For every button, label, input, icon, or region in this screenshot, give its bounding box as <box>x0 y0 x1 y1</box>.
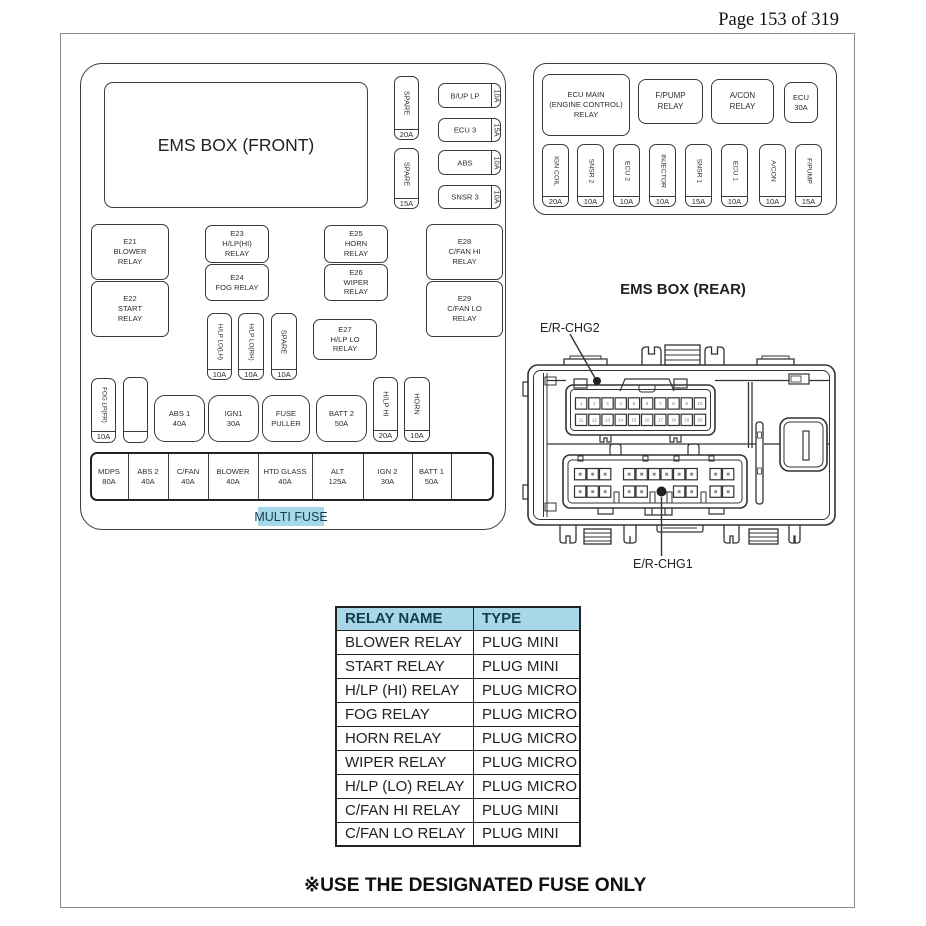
svg-text:3: 3 <box>606 401 609 406</box>
svg-text:2: 2 <box>593 401 596 406</box>
svg-text:5: 5 <box>633 401 636 406</box>
svg-text:1: 1 <box>580 401 583 406</box>
svg-text:4: 4 <box>620 401 623 406</box>
svg-text:11: 11 <box>579 417 584 422</box>
svg-text:12: 12 <box>592 417 598 422</box>
svg-text:15: 15 <box>631 417 637 422</box>
svg-text:17: 17 <box>658 417 664 422</box>
svg-text:8: 8 <box>672 401 675 406</box>
svg-text:16: 16 <box>645 417 651 422</box>
svg-text:20: 20 <box>697 417 703 422</box>
svg-text:13: 13 <box>605 417 611 422</box>
svg-text:10: 10 <box>697 401 703 406</box>
svg-text:19: 19 <box>684 417 690 422</box>
svg-text:14: 14 <box>618 417 624 422</box>
svg-text:6: 6 <box>646 401 649 406</box>
svg-text:9: 9 <box>686 401 689 406</box>
svg-text:7: 7 <box>659 401 662 406</box>
svg-text:18: 18 <box>671 417 677 422</box>
